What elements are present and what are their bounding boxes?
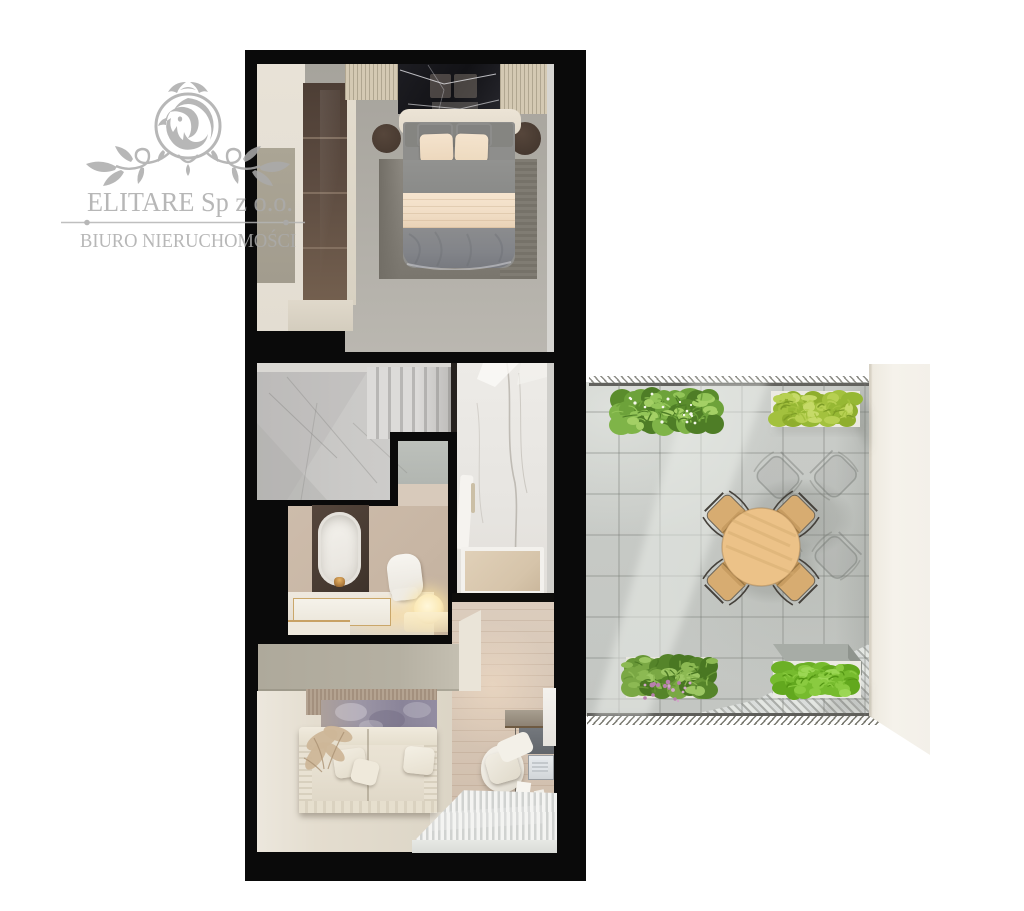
svg-text:ELITARE Sp z o.o.: ELITARE Sp z o.o. (87, 187, 293, 217)
svg-text:BIURO NIERUCHOMOŚCI: BIURO NIERUCHOMOŚCI (80, 228, 296, 252)
